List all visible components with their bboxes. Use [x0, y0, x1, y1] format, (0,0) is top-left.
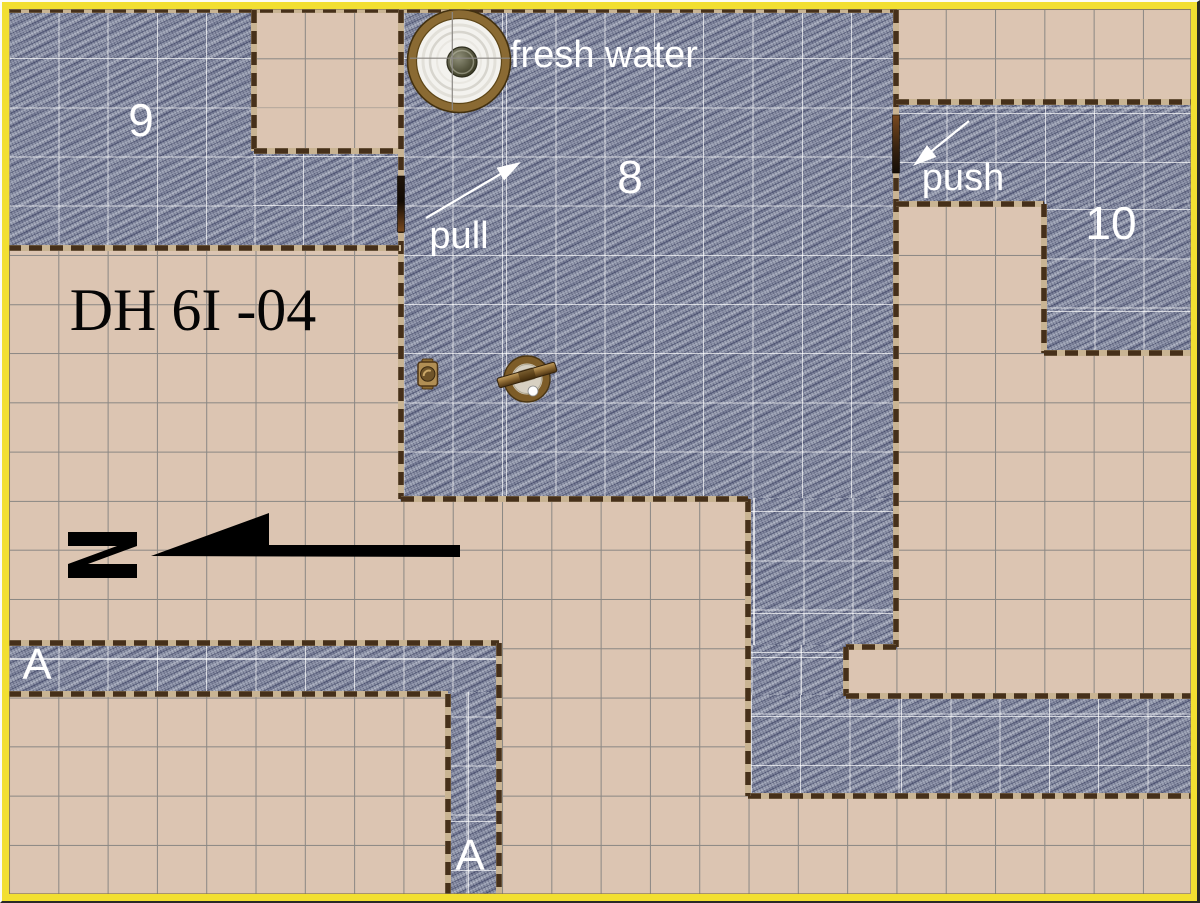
stone-region: [746, 695, 1192, 796]
stone-region: [748, 645, 847, 699]
fresh-water-label: fresh water: [510, 36, 698, 74]
push-label: push: [922, 159, 1004, 197]
stone-region: [748, 498, 897, 649]
room-8-label: 8: [617, 154, 643, 200]
room-9-label: 9: [128, 97, 154, 143]
corridor-a-label-south: A: [455, 834, 484, 878]
map-title: DH 6I -04: [70, 280, 317, 340]
north-arrow: [68, 513, 460, 578]
north-n-glyph: [68, 532, 137, 578]
north-pointer: [151, 513, 460, 557]
dungeon-map: 9810AAfresh waterpullpushDH 6I -04: [0, 0, 1200, 903]
corridor-a-label-west: A: [22, 643, 51, 687]
pull-label: pull: [429, 217, 488, 255]
room-10-label: 10: [1085, 200, 1136, 246]
stone-region: [8, 644, 500, 694]
stone-region: [253, 151, 400, 249]
